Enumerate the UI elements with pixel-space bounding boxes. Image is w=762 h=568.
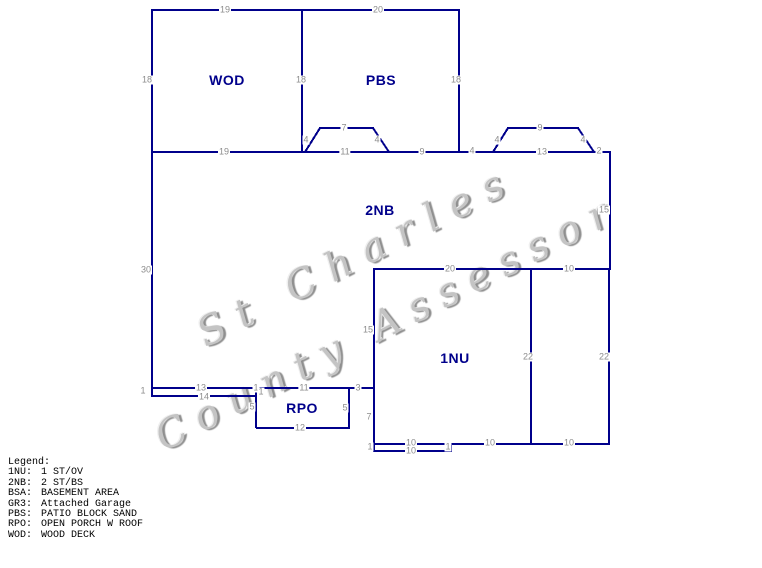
sketch-line — [493, 128, 508, 152]
legend-code: WOD: — [8, 531, 41, 541]
sketch-line — [373, 128, 389, 152]
legend: Legend: 1NU: 1 ST/OV 2NB: 2 ST/BS BSA: B… — [8, 458, 143, 541]
assessor-sketch-canvas: St Charles County Assessor 1920181818194… — [0, 0, 762, 568]
legend-desc: WOOD DECK — [41, 531, 95, 541]
sketch-line — [305, 128, 320, 152]
sketch-line — [578, 128, 594, 152]
legend-row: WOD: WOOD DECK — [8, 531, 143, 541]
